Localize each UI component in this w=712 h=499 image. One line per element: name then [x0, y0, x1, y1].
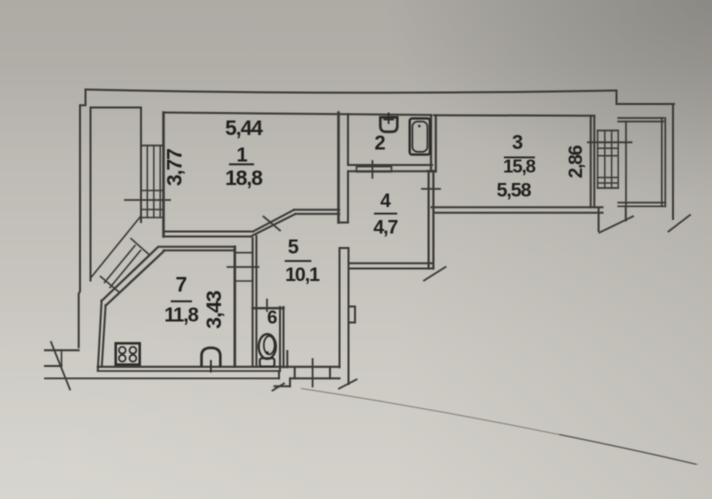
svg-text:4,7: 4,7 — [373, 217, 397, 239]
svg-text:3: 3 — [512, 132, 523, 154]
svg-text:4: 4 — [380, 191, 391, 212]
svg-text:11,8: 11,8 — [164, 305, 199, 327]
svg-text:5,44: 5,44 — [225, 117, 263, 140]
svg-text:3,43: 3,43 — [202, 290, 226, 329]
svg-text:10,1: 10,1 — [285, 264, 320, 286]
svg-text:18,8: 18,8 — [225, 167, 263, 190]
svg-text:5: 5 — [288, 237, 299, 259]
svg-text:5,58: 5,58 — [497, 179, 532, 201]
svg-text:2: 2 — [374, 133, 385, 155]
svg-text:6: 6 — [267, 307, 277, 328]
svg-text:2,86: 2,86 — [566, 145, 587, 178]
svg-text:1: 1 — [236, 145, 247, 167]
svg-text:15,8: 15,8 — [503, 156, 536, 177]
svg-text:3,77: 3,77 — [164, 149, 187, 186]
svg-text:7: 7 — [175, 273, 186, 296]
